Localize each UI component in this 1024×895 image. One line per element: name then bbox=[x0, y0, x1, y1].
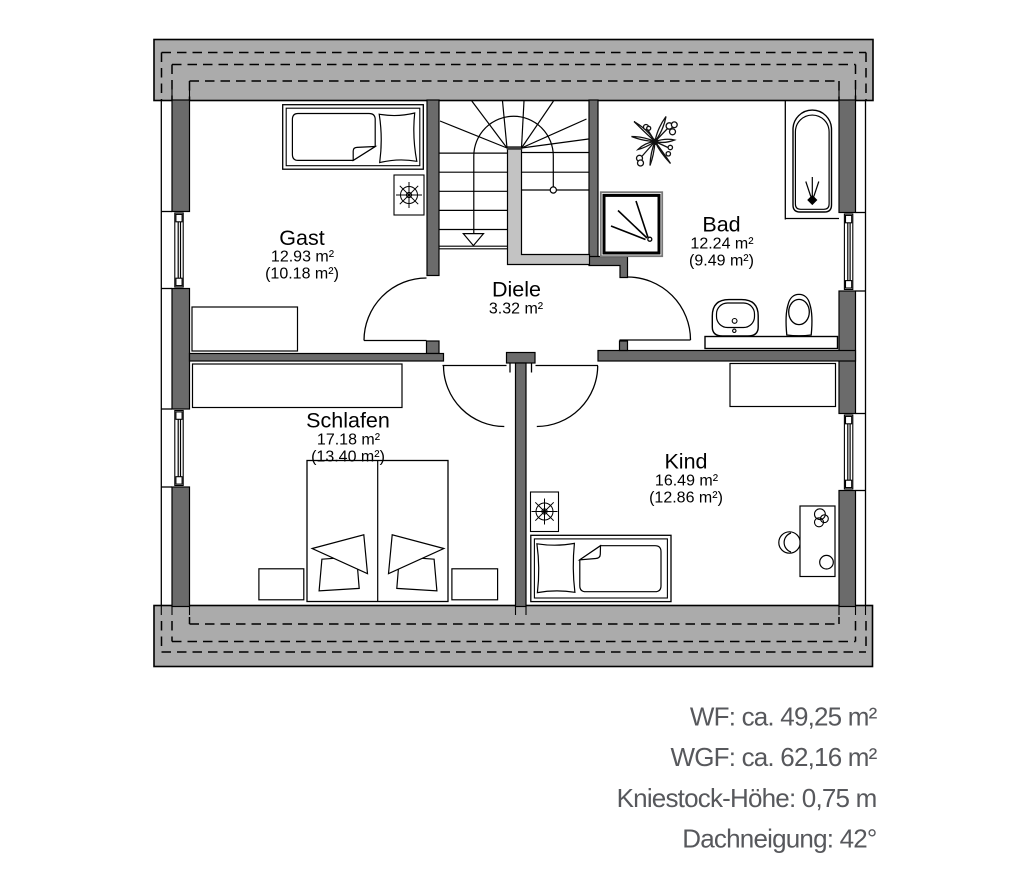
svg-text:(9.49 m²): (9.49 m²) bbox=[689, 253, 754, 270]
svg-text:Bad: Bad bbox=[702, 213, 740, 237]
svg-text:3.32 m²: 3.32 m² bbox=[489, 301, 544, 318]
svg-text:(13.40 m²): (13.40 m²) bbox=[311, 449, 385, 466]
svg-text:Gast: Gast bbox=[279, 226, 324, 250]
svg-text:Kind: Kind bbox=[664, 450, 707, 474]
svg-text:Kniestock-Höhe: 0,75 m: Kniestock-Höhe: 0,75 m bbox=[617, 783, 877, 813]
svg-text:16.49 m²: 16.49 m² bbox=[655, 473, 719, 490]
svg-text:Schlafen: Schlafen bbox=[306, 409, 390, 433]
svg-text:Dachneigung: 42°: Dachneigung: 42° bbox=[682, 824, 876, 854]
svg-text:WGF: ca. 62,16 m²: WGF: ca. 62,16 m² bbox=[670, 742, 877, 772]
svg-text:17.18 m²: 17.18 m² bbox=[317, 432, 381, 449]
svg-text:12.24 m²: 12.24 m² bbox=[690, 236, 754, 253]
svg-text:WF: ca. 49,25 m²: WF: ca. 49,25 m² bbox=[690, 702, 878, 732]
svg-text:12.93 m²: 12.93 m² bbox=[271, 249, 335, 266]
svg-text:(12.86 m²): (12.86 m²) bbox=[649, 490, 723, 507]
svg-text:(10.18 m²): (10.18 m²) bbox=[265, 266, 339, 283]
svg-text:Diele: Diele bbox=[492, 278, 541, 302]
